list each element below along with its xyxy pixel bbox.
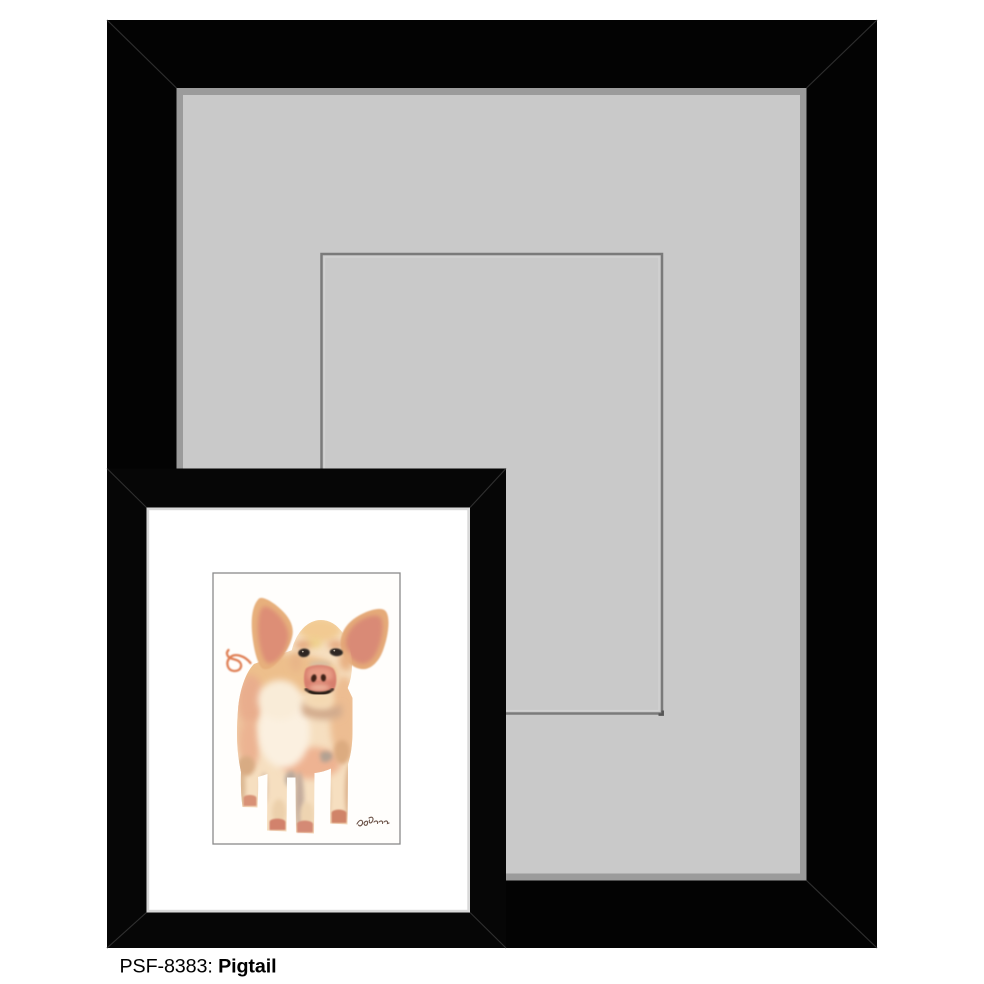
svg-text:PSF-8383: Pigtail: PSF-8383: Pigtail bbox=[120, 956, 277, 978]
